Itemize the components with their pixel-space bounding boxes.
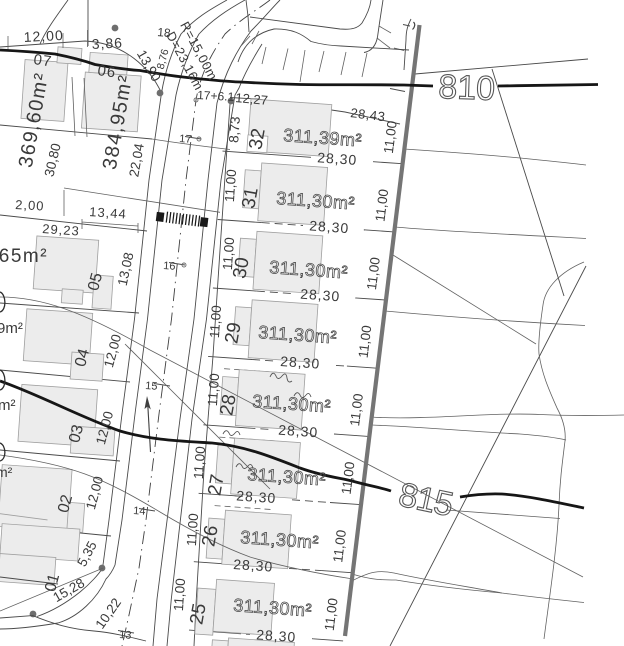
svg-text:11,00: 11,00: [207, 305, 224, 339]
svg-text:25: 25: [186, 602, 210, 626]
svg-text:17+6.1: 17+6.1: [197, 88, 235, 104]
svg-text:11,00: 11,00: [222, 169, 239, 203]
svg-text:28,30: 28,30: [317, 149, 358, 168]
svg-text:,65m²: ,65m²: [0, 246, 48, 267]
svg-text:810: 810: [438, 68, 496, 108]
svg-text:9m²: 9m²: [0, 320, 23, 337]
svg-text:28,30: 28,30: [309, 217, 350, 236]
svg-text:12,27: 12,27: [235, 90, 269, 108]
svg-text:26: 26: [198, 524, 222, 548]
svg-text:12,00: 12,00: [23, 27, 64, 45]
svg-text:11,00: 11,00: [171, 578, 188, 612]
svg-text:11,00: 11,00: [184, 513, 201, 547]
svg-text:07: 07: [32, 51, 53, 70]
svg-text:13,44: 13,44: [89, 204, 128, 222]
svg-text:28,30: 28,30: [278, 422, 319, 441]
svg-text:8,73: 8,73: [226, 116, 243, 143]
svg-text:14: 14: [133, 505, 146, 518]
svg-text:29: 29: [221, 321, 245, 345]
svg-text:28,30: 28,30: [236, 487, 277, 506]
svg-text:3,86: 3,86: [91, 34, 123, 52]
svg-text:29,23: 29,23: [42, 221, 81, 239]
svg-text:32: 32: [245, 127, 269, 151]
svg-text:11,00: 11,00: [191, 446, 208, 480]
svg-text:16: 16: [163, 260, 176, 273]
svg-text:2,00: 2,00: [15, 197, 45, 214]
svg-text:28,30: 28,30: [300, 286, 341, 305]
svg-text:13: 13: [119, 629, 132, 642]
svg-text:31: 31: [238, 186, 262, 210]
svg-text:27: 27: [204, 473, 228, 497]
svg-text:17: 17: [179, 133, 192, 146]
svg-text:18: 18: [157, 25, 172, 40]
svg-text:28,30: 28,30: [233, 556, 274, 575]
svg-text:28,30: 28,30: [280, 353, 321, 372]
svg-text:11,00: 11,00: [220, 237, 237, 271]
svg-text:15: 15: [145, 380, 158, 393]
svg-text:11,00: 11,00: [205, 373, 222, 407]
svg-text:m²: m²: [0, 397, 16, 414]
svg-text:28,30: 28,30: [256, 626, 297, 645]
svg-text:m²: m²: [0, 464, 13, 480]
